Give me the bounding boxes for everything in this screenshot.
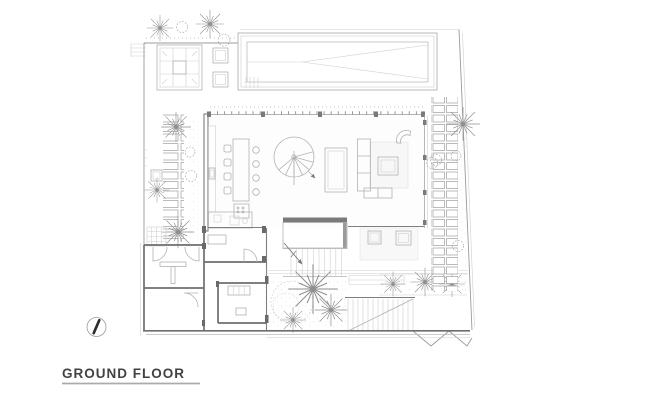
main-staircase: [283, 223, 347, 277]
swimming-pool: [238, 33, 437, 90]
storage-room-door: [184, 293, 198, 307]
boundary-zigzag: [413, 331, 472, 346]
bush-icon: [177, 22, 188, 33]
palm-tree-icon: [162, 216, 195, 249]
palm-tree-icon: [381, 272, 406, 297]
pool-ladder: [244, 77, 260, 88]
palm-tree-icon: [280, 307, 306, 333]
stair-direction-arrow-icon: [284, 243, 302, 264]
pool-terrace: [131, 10, 459, 110]
rug: [370, 142, 408, 188]
left-garden-strip: [141, 110, 200, 336]
title-block: GROUND FLOOR: [62, 366, 200, 384]
palm-tree-icon: [288, 264, 337, 313]
garden-planter: [151, 170, 162, 181]
courtyard-garden: [265, 228, 348, 333]
outer-walls: [143, 331, 470, 338]
pool-deck-daybed: [157, 45, 202, 90]
bathroom-fixtures: [228, 286, 250, 315]
main-hall: [202, 107, 428, 249]
palm-tree-icon: [315, 294, 348, 327]
palm-tree-icon: [147, 15, 173, 41]
palm-tree-icon: [446, 107, 480, 141]
terrace-stairs: [345, 298, 415, 332]
bridge-wall: [283, 218, 347, 223]
stepping-stone-path-right: [431, 97, 458, 291]
lower-left-rooms: [144, 228, 266, 330]
floor-plan-drawing: GROUND FLOOR: [0, 0, 650, 400]
small-room-fixtures: [208, 235, 257, 262]
page-title: GROUND FLOOR: [62, 366, 185, 381]
north-arrow-icon: [87, 318, 106, 337]
palm-tree-icon: [196, 10, 225, 39]
bush-icon: [218, 34, 230, 46]
deck-ottomans: [213, 48, 228, 87]
palm-tree-icon: [161, 112, 191, 142]
entry-hall-double-doors: [153, 247, 199, 284]
